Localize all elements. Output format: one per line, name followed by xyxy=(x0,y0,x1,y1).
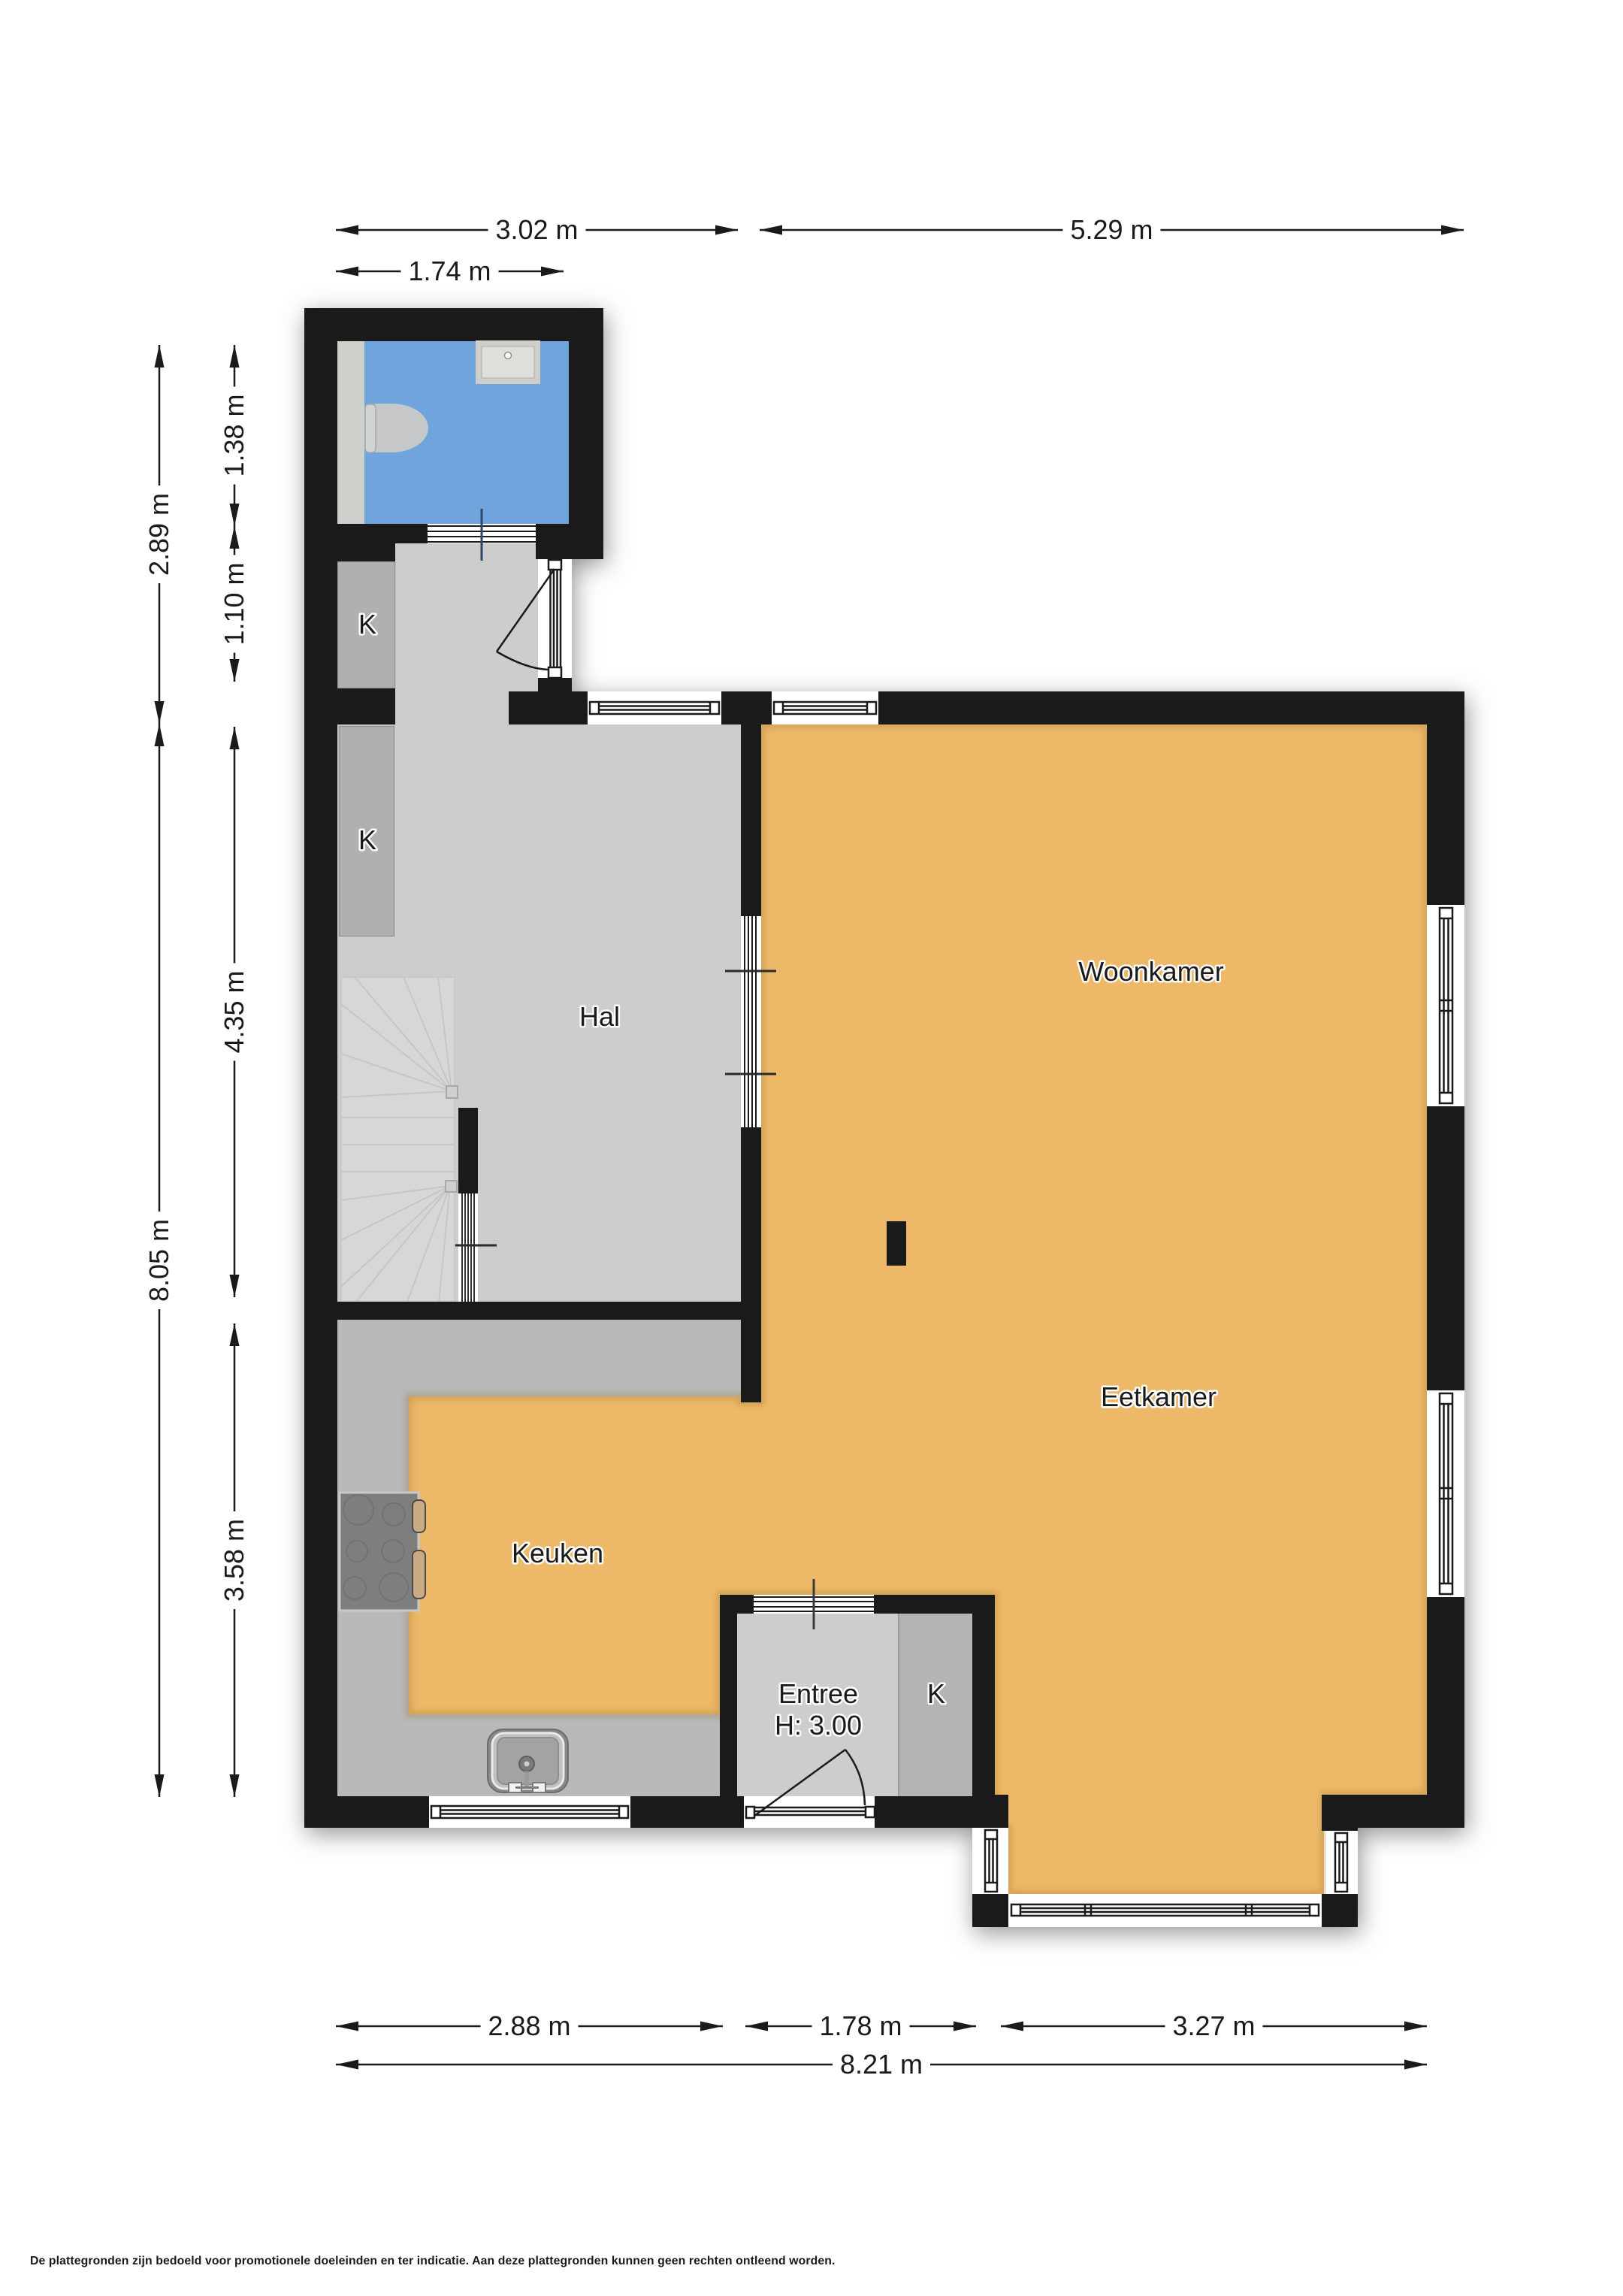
svg-text:4.35 m: 4.35 m xyxy=(219,970,249,1053)
svg-text:K: K xyxy=(358,609,376,640)
svg-text:H: 3.00: H: 3.00 xyxy=(775,1710,862,1741)
svg-text:1.74 m: 1.74 m xyxy=(408,256,491,286)
svg-text:Eetkamer: Eetkamer xyxy=(1101,1381,1216,1412)
svg-text:1.10 m: 1.10 m xyxy=(219,562,249,645)
svg-text:8.21 m: 8.21 m xyxy=(840,2049,923,2080)
svg-text:3.58 m: 3.58 m xyxy=(219,1519,249,1602)
svg-text:Woonkamer: Woonkamer xyxy=(1078,956,1223,987)
svg-text:1.38 m: 1.38 m xyxy=(219,394,249,476)
svg-text:Entree: Entree xyxy=(778,1678,858,1709)
svg-text:K: K xyxy=(927,1678,945,1709)
svg-text:2.88 m: 2.88 m xyxy=(488,2010,570,2041)
svg-text:5.29 m: 5.29 m xyxy=(1070,214,1153,245)
svg-text:8.05 m: 8.05 m xyxy=(144,1219,174,1302)
svg-text:K: K xyxy=(358,824,376,855)
svg-text:De plattegronden zijn bedoeld: De plattegronden zijn bedoeld voor promo… xyxy=(30,2255,836,2267)
svg-text:3.27 m: 3.27 m xyxy=(1172,2010,1255,2041)
svg-text:3.02 m: 3.02 m xyxy=(495,214,578,245)
svg-text:Hal: Hal xyxy=(579,1001,620,1032)
svg-text:2.89 m: 2.89 m xyxy=(144,493,174,576)
svg-text:Keuken: Keuken xyxy=(512,1538,603,1568)
svg-text:1.78 m: 1.78 m xyxy=(819,2010,902,2041)
